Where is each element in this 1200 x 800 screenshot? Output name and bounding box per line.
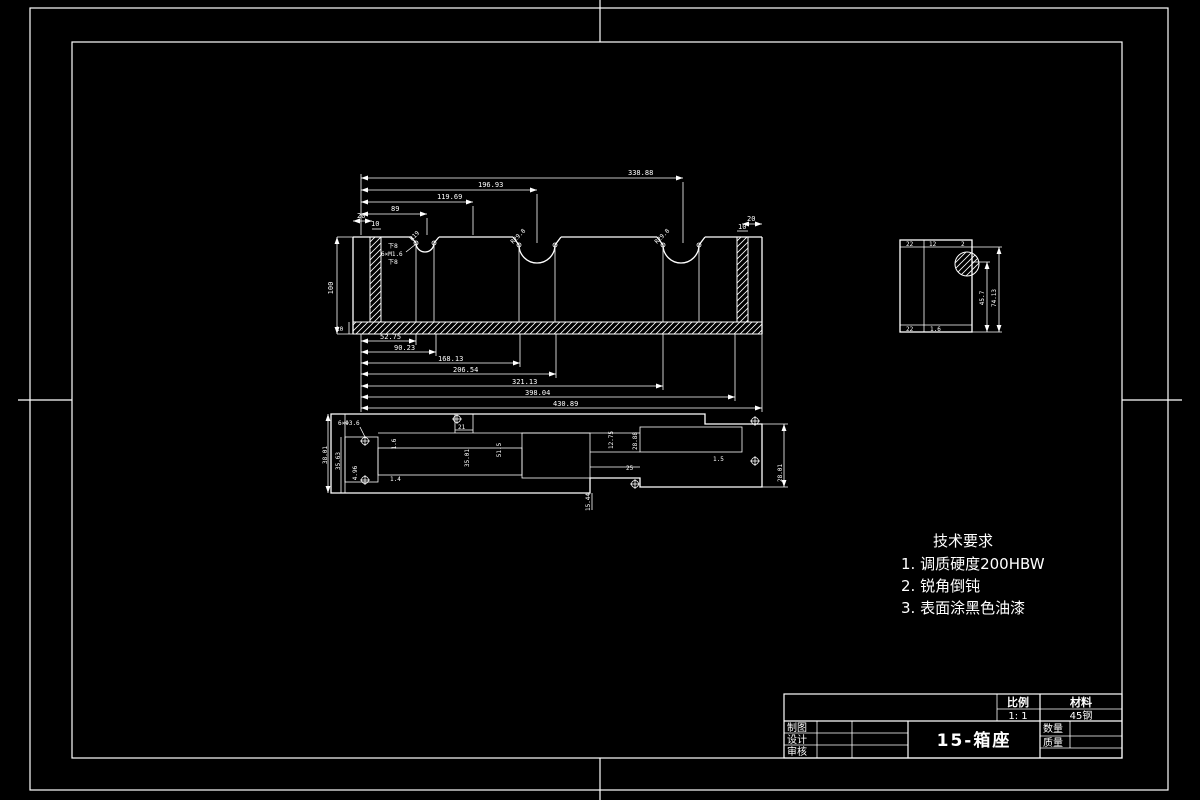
- thread-note-top: 下8: [388, 243, 398, 250]
- material-label: 材料: [1070, 695, 1092, 709]
- dim-label: 1.6: [391, 438, 398, 449]
- mass-label: 质量: [1043, 737, 1063, 749]
- material-value: 45钢: [1070, 709, 1093, 722]
- tech-req-item: 1. 调质硬度200HBW: [901, 555, 1045, 573]
- tech-req-item: 2. 锐角倒钝: [901, 577, 980, 595]
- dim-label: 35.01: [464, 449, 471, 467]
- technical-requirements: 技术要求 1. 调质硬度200HBW 2. 锐角倒钝 3. 表面涂黑色油漆: [901, 532, 1045, 617]
- dim-label: 22: [906, 326, 914, 333]
- dim-label: 1.6: [930, 326, 941, 333]
- thread-note: 6×M1.6: [381, 251, 403, 258]
- dim-label: 1.4: [390, 476, 401, 483]
- row-audit-label: 审核: [787, 745, 807, 758]
- dim-label: 430.89: [553, 400, 578, 408]
- dim-label: 38.01: [322, 446, 329, 464]
- front-view-dimension-text: 338.88 196.93 119.69 89 20 10 20 10 100 …: [327, 169, 755, 408]
- dim-label: 398.04: [525, 389, 550, 397]
- dim-label: 338.88: [628, 169, 653, 177]
- tech-req-title: 技术要求: [933, 532, 993, 550]
- dim-label: 2: [961, 241, 965, 248]
- dim-label: 22: [906, 241, 914, 248]
- side-view-dimension-text: 22 12 2 22 1.6 45.7 74.13: [906, 241, 998, 333]
- dim-label: 10: [336, 326, 344, 333]
- scale-value: 1: 1: [1008, 711, 1027, 722]
- cad-drawing-canvas[interactable]: 338.88 196.93 119.69 89 20 10 20 10 100 …: [0, 0, 1200, 800]
- plan-view-dimension-text: 6×Φ3.6 38.01 35.63 4.96 1.6 21 35.01 51.…: [322, 420, 784, 511]
- dim-label: 25: [626, 465, 634, 472]
- dim-label: 51.5: [496, 442, 503, 457]
- row-draft-label: 制图: [787, 721, 807, 734]
- dim-label: 15.44: [585, 493, 592, 511]
- side-view-outline: [900, 240, 979, 332]
- dim-label: 100: [327, 282, 335, 295]
- thread-note-bottom: 下8: [388, 259, 398, 266]
- dim-label: 168.13: [438, 355, 463, 363]
- cad-sheet: 338.88 196.93 119.69 89 20 10 20 10 100 …: [0, 0, 1200, 800]
- title-block: 比例 材料 1: 1 45钢 制图 设计 审核 15-箱座 数量 质量: [784, 694, 1122, 758]
- dim-label: 10: [738, 223, 746, 231]
- dim-label: 89: [391, 205, 399, 213]
- dim-label: 28.01: [777, 464, 784, 482]
- dim-label: 206.54: [453, 366, 478, 374]
- dim-label: 12: [929, 241, 937, 248]
- dim-label: 196.93: [478, 181, 503, 189]
- dim-label: 20: [357, 212, 365, 220]
- row-design-label: 设计: [787, 733, 807, 746]
- dim-label: 10: [371, 220, 379, 228]
- dim-label: 20: [747, 215, 755, 223]
- dim-label: 35.63: [335, 452, 342, 470]
- dim-label: 4.96: [352, 465, 359, 480]
- dim-label: 28.88: [632, 432, 639, 450]
- dim-label: 1.5: [713, 456, 724, 463]
- dim-label: 45.7: [979, 290, 986, 305]
- qty-label: 数量: [1043, 722, 1063, 735]
- hole-note: 6×Φ3.6: [338, 420, 360, 427]
- dim-label: 321.13: [512, 378, 537, 386]
- dim-label: 21: [458, 424, 466, 431]
- tech-req-item: 3. 表面涂黑色油漆: [901, 599, 1025, 617]
- dim-label: 119.69: [437, 193, 462, 201]
- front-view-outline: [353, 237, 762, 334]
- dim-label: 74.13: [991, 289, 998, 307]
- drawing-frame: [18, 0, 1182, 800]
- dim-label: 90.23: [394, 344, 415, 352]
- part-name: 15-箱座: [937, 730, 1012, 751]
- scale-label: 比例: [1007, 695, 1029, 709]
- dim-label: 52.75: [380, 333, 401, 341]
- dim-label: 12.75: [608, 431, 615, 449]
- radius-label: R19: [408, 230, 421, 243]
- front-view-dimension-lines: [337, 174, 762, 412]
